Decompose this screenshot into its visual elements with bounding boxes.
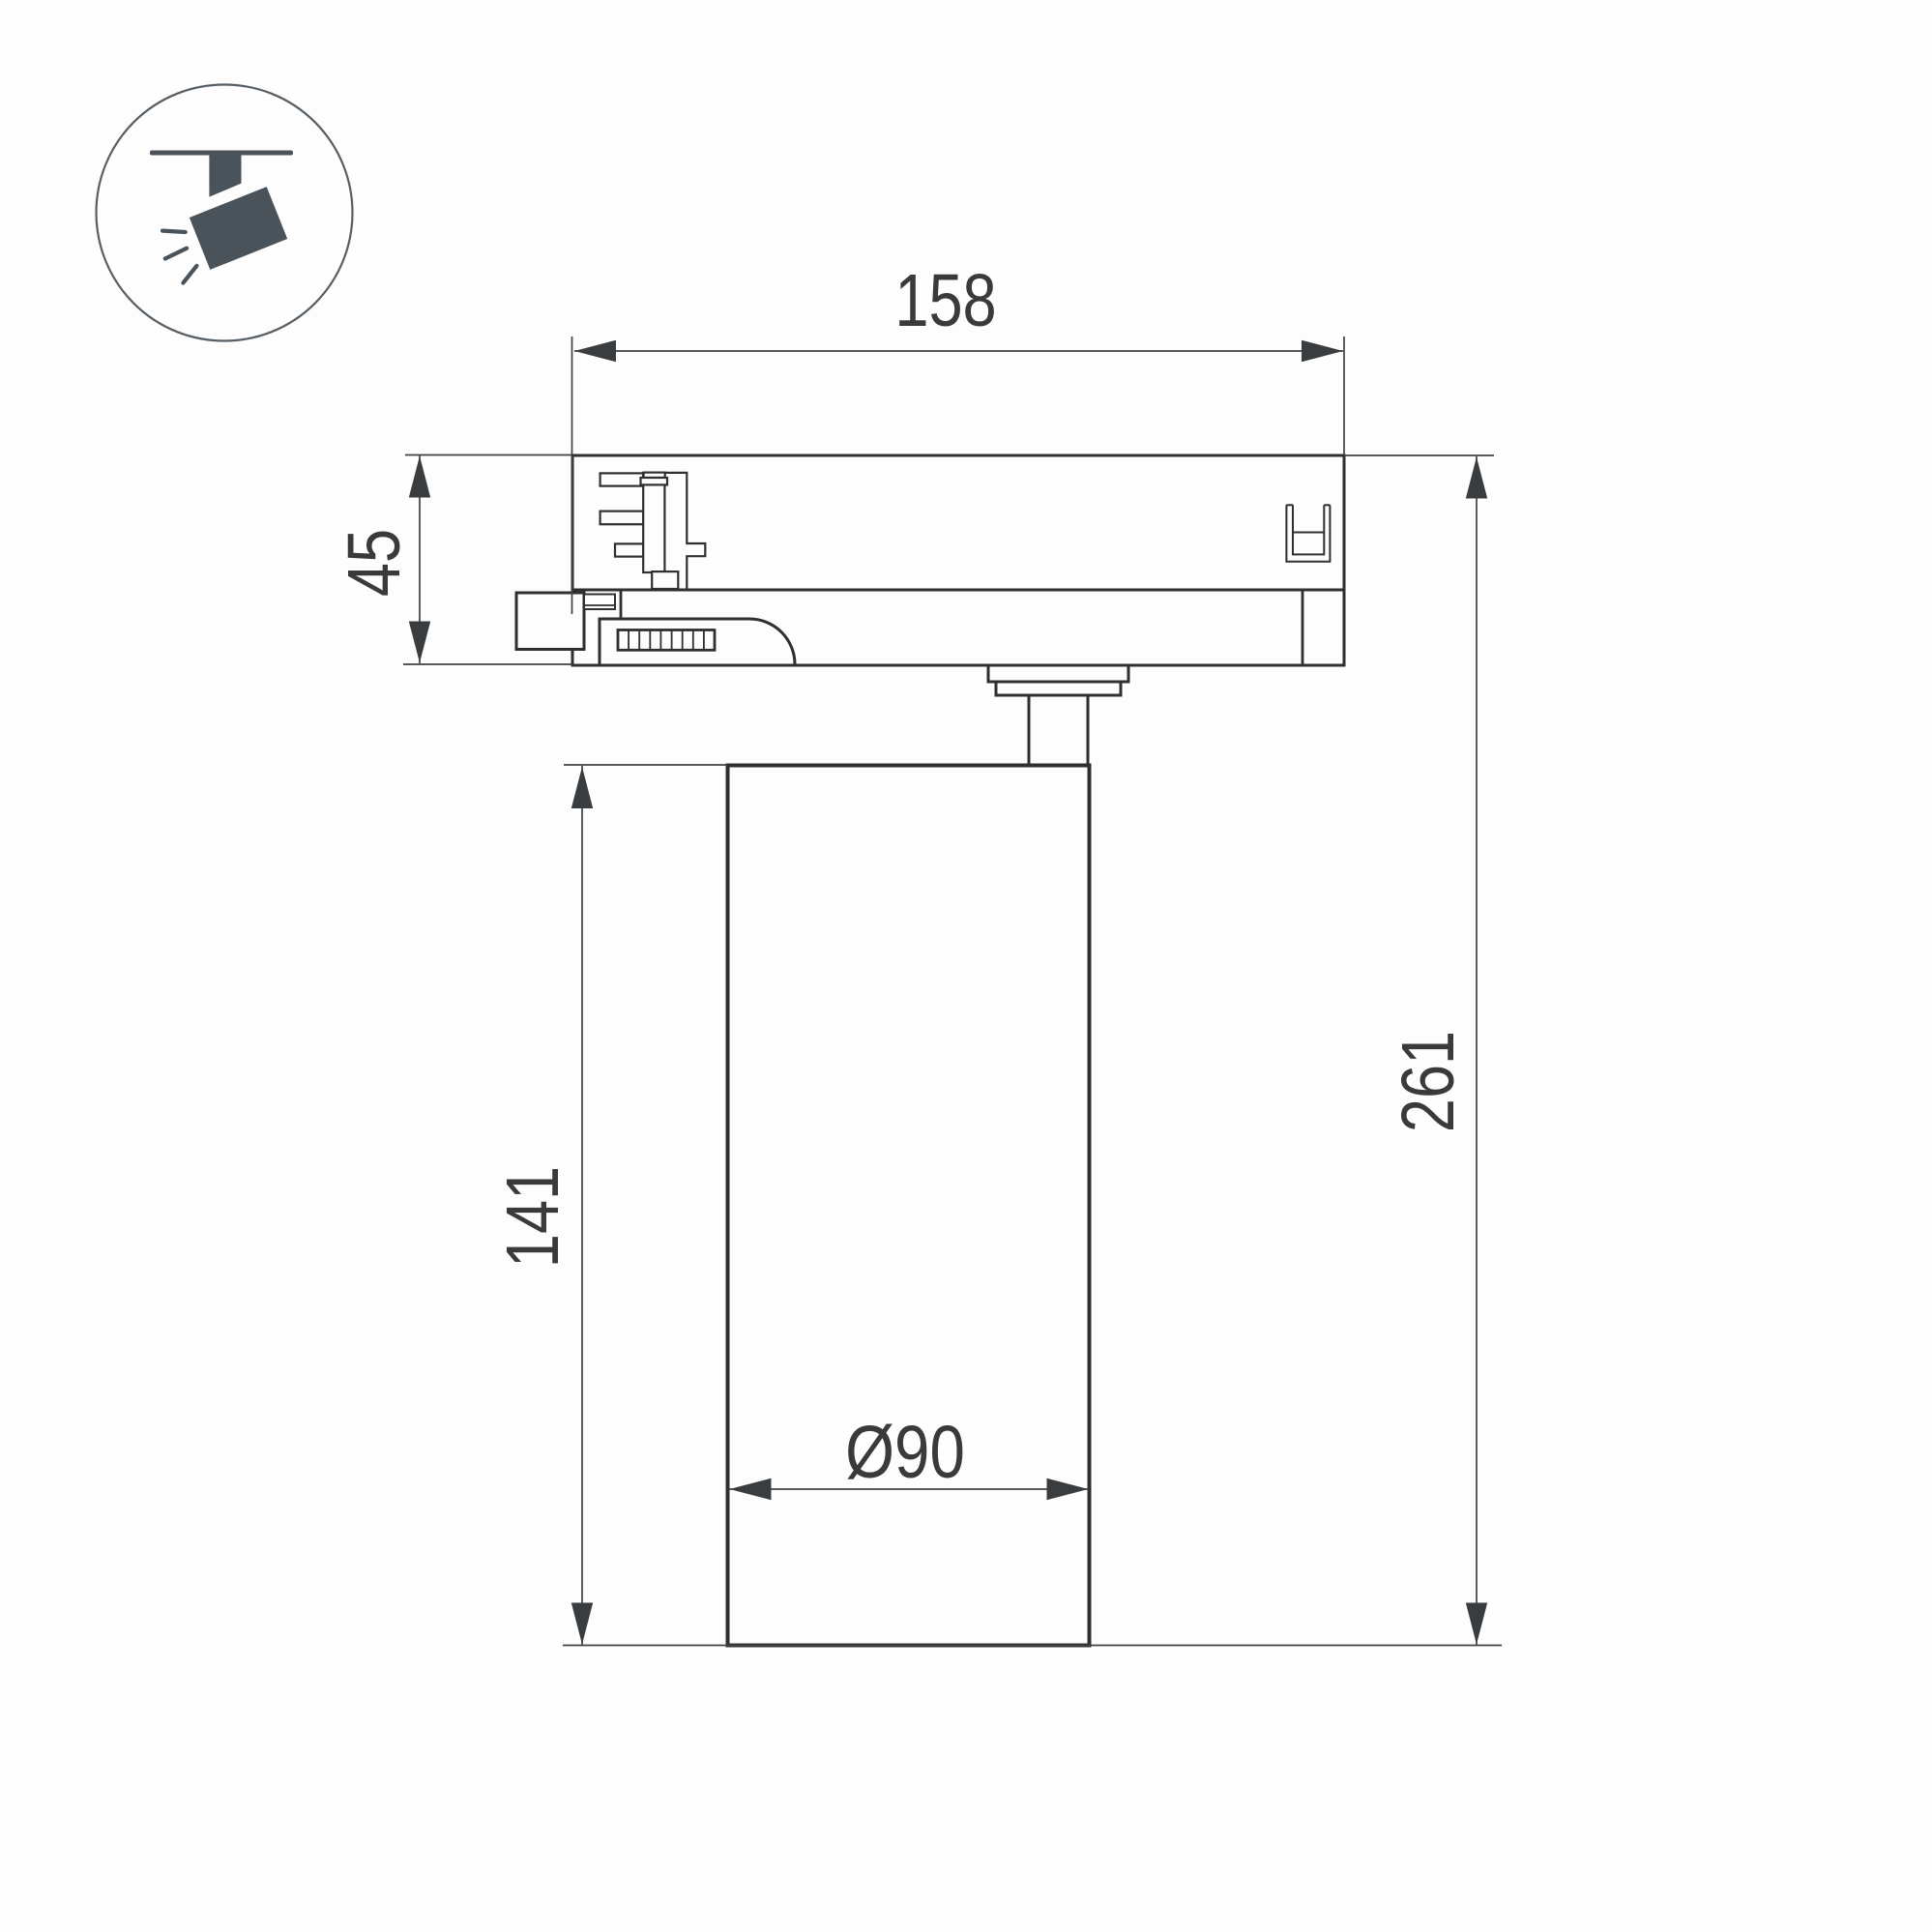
svg-text:261: 261	[1386, 1031, 1469, 1132]
svg-text:158: 158	[894, 258, 996, 341]
svg-text:141: 141	[490, 1166, 573, 1268]
svg-text:Ø90: Ø90	[845, 1411, 965, 1494]
svg-text:45: 45	[332, 529, 415, 597]
